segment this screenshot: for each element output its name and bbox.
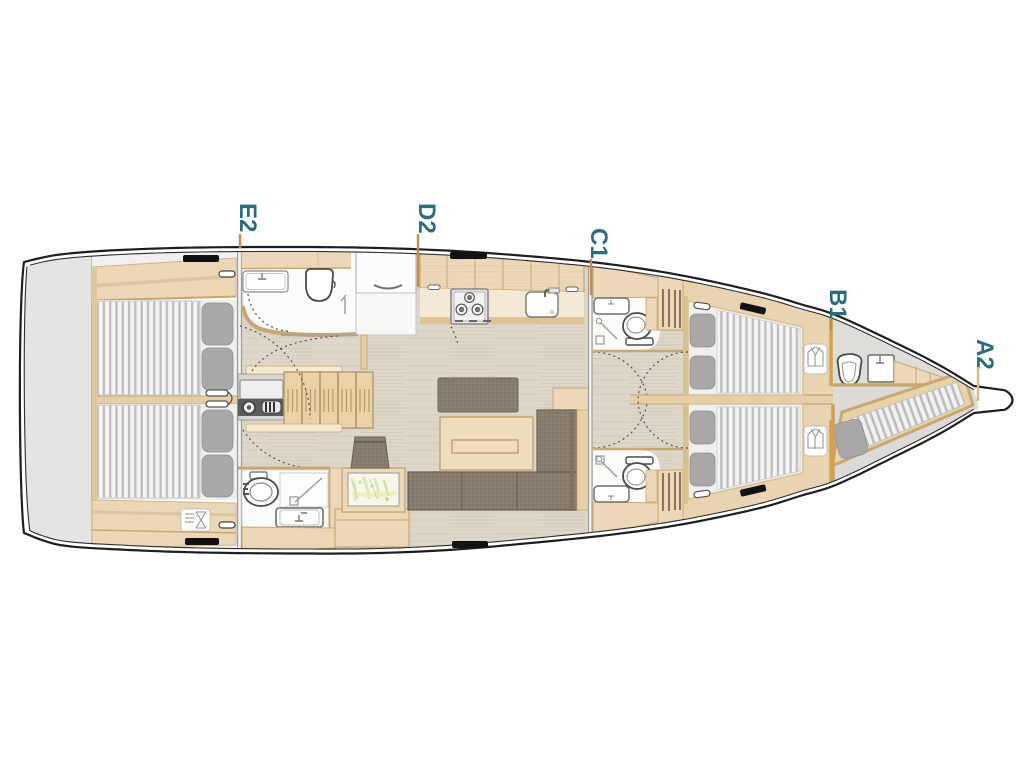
svg-text:E2: E2 [234, 203, 261, 232]
svg-text:A2: A2 [971, 339, 998, 370]
svg-text:C1: C1 [585, 228, 612, 259]
svg-text:B1: B1 [824, 289, 851, 320]
svg-text:D2: D2 [413, 203, 440, 234]
